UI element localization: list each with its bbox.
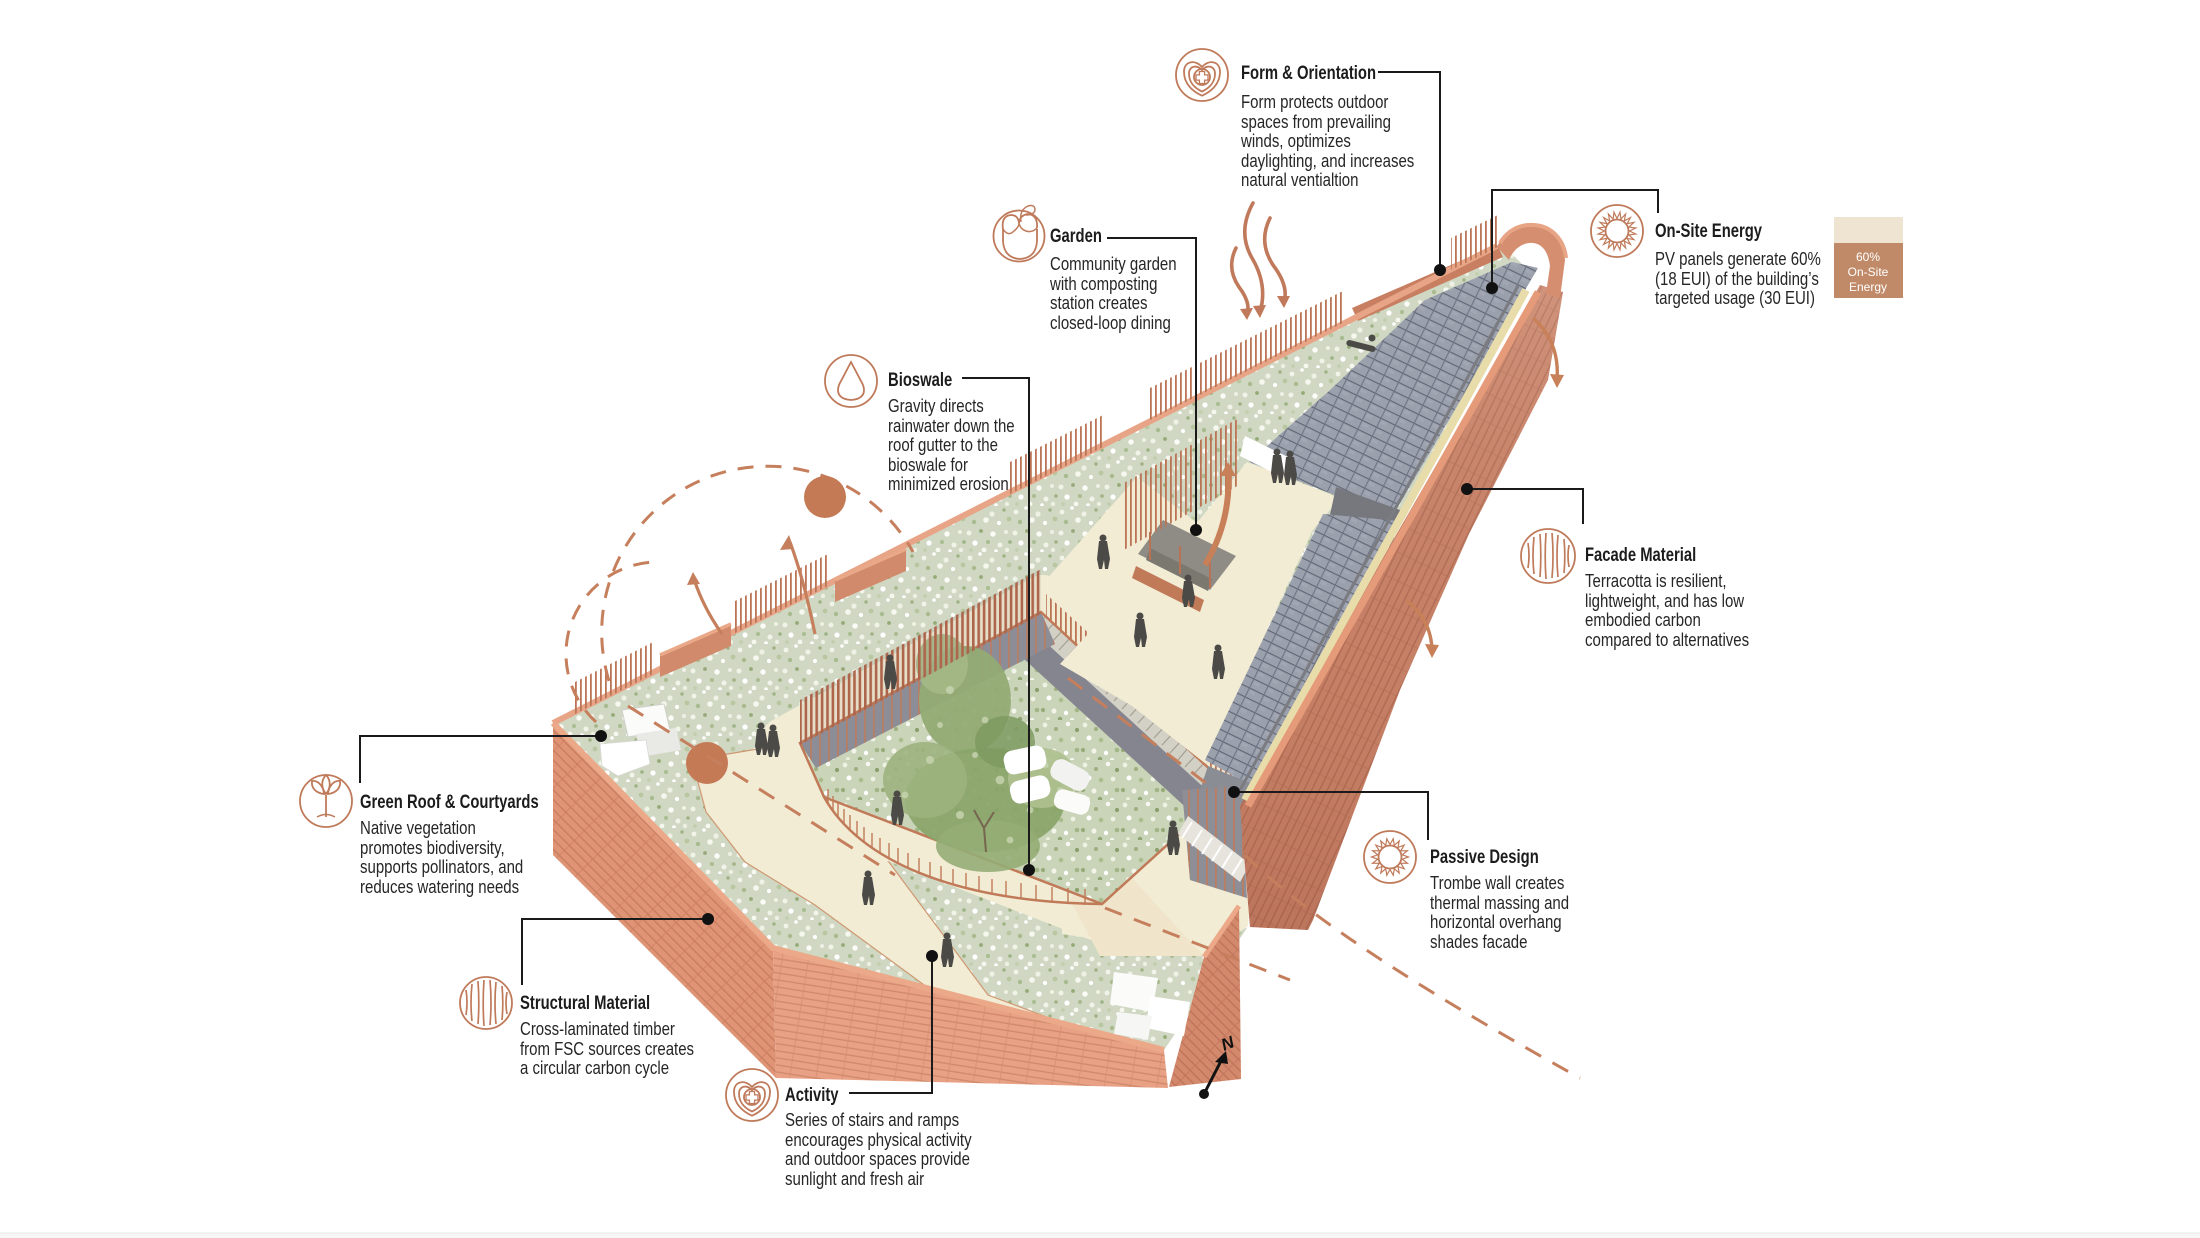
svg-text:On-Site: On-Site (1848, 265, 1889, 279)
svg-text:Energy: Energy (1849, 280, 1887, 294)
svg-text:60%: 60% (1856, 250, 1880, 264)
